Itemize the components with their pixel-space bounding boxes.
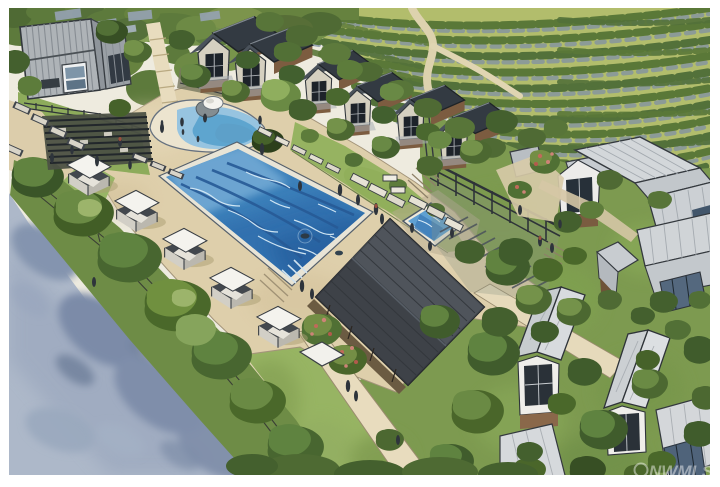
svg-text:NWMLS: NWMLS <box>649 462 714 481</box>
